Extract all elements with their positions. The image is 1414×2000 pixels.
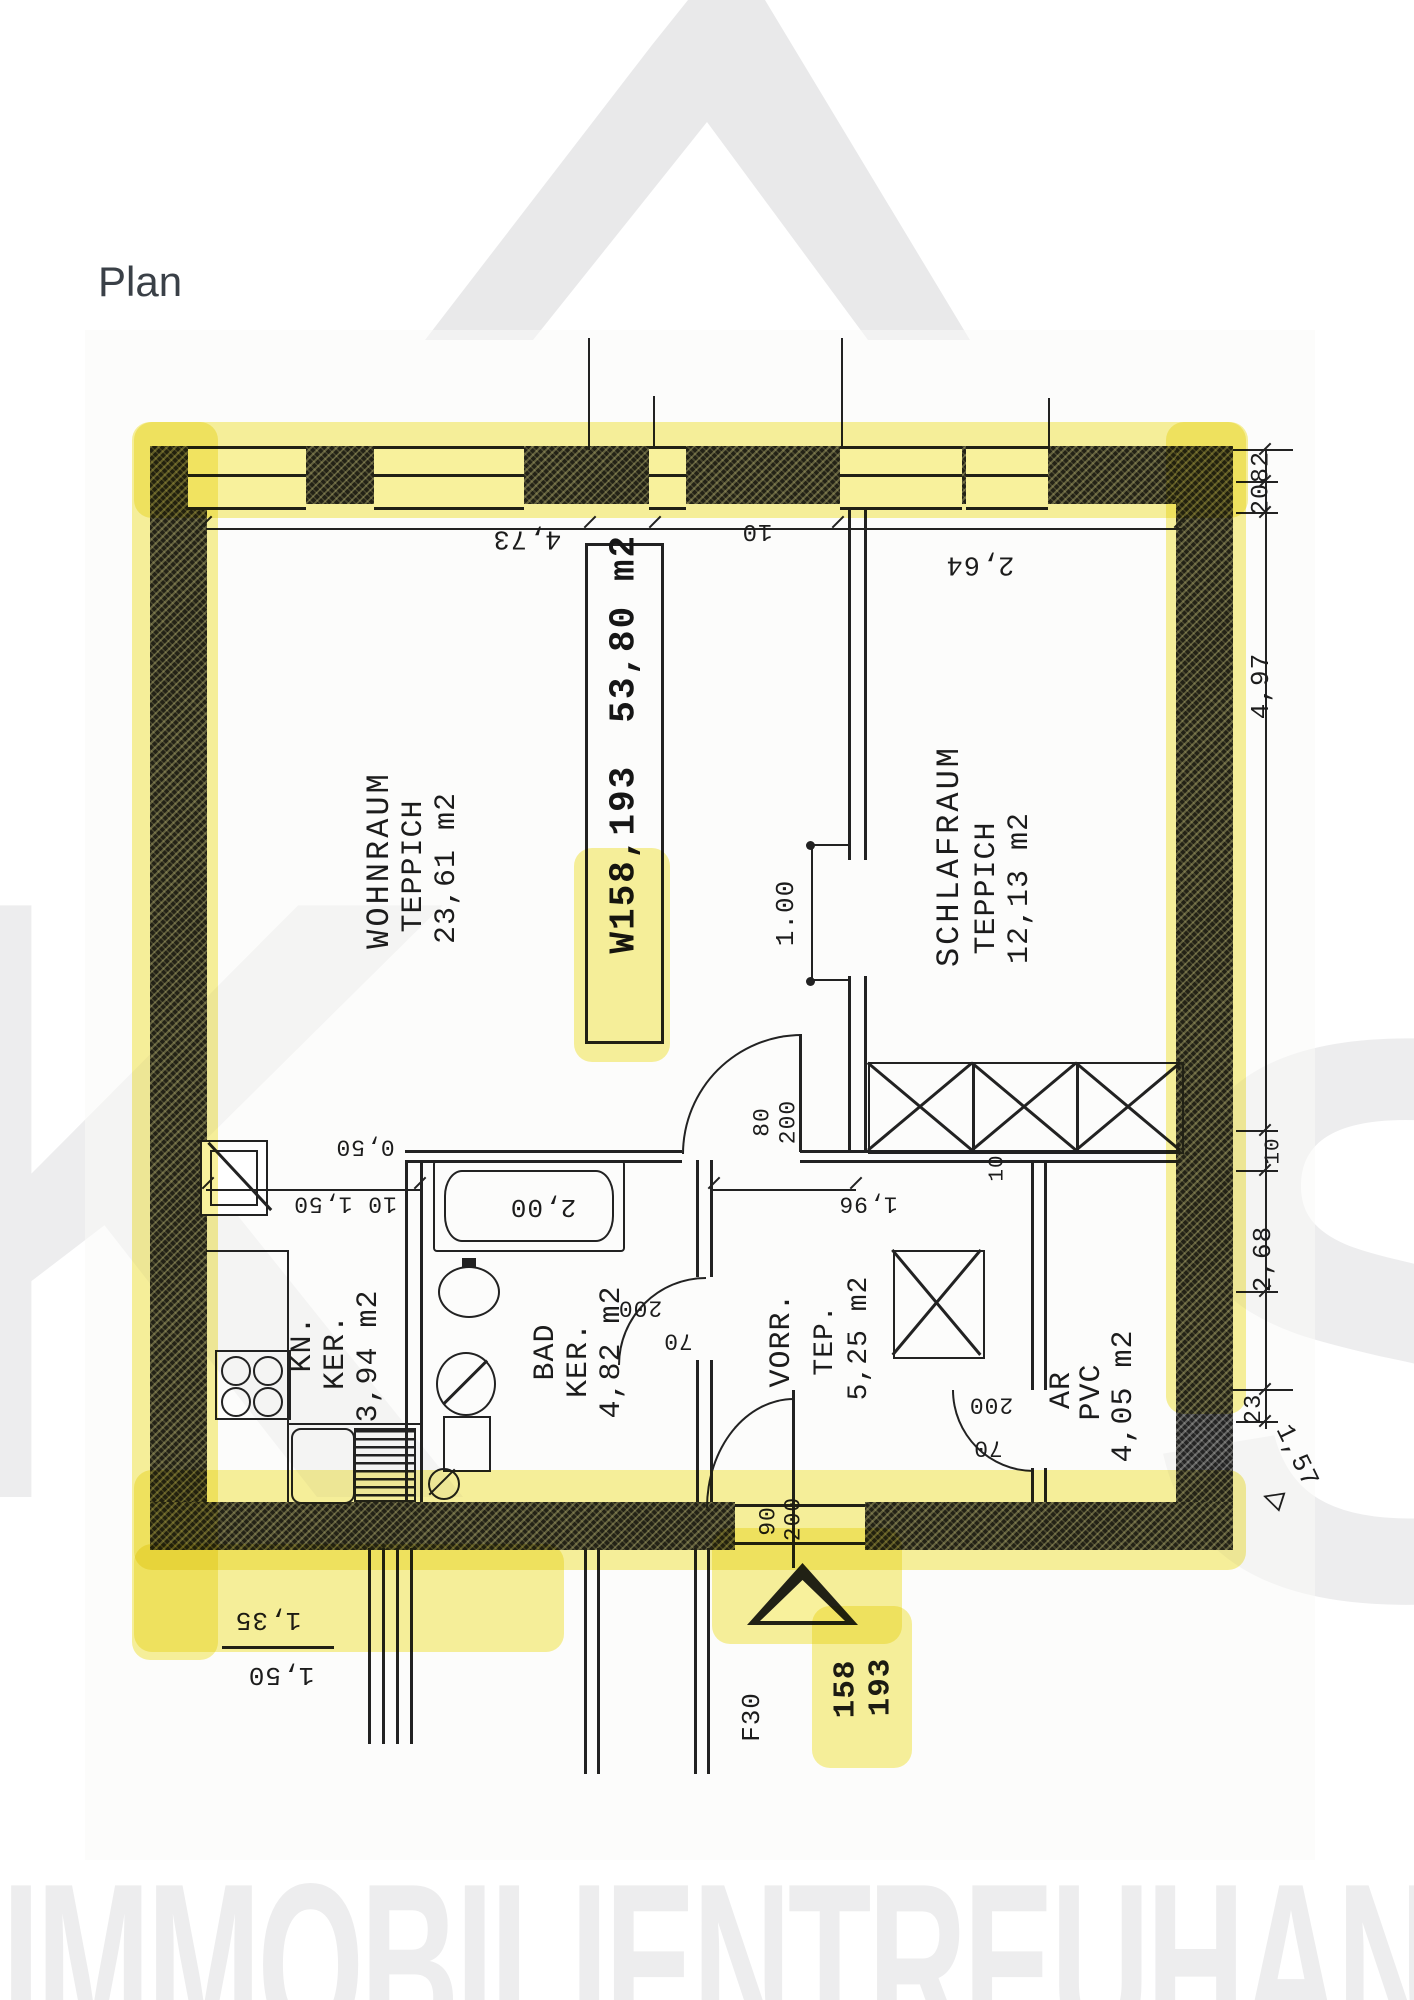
wall-left <box>150 446 207 1550</box>
stove-burner <box>253 1356 283 1386</box>
window <box>840 446 962 510</box>
dim-terrace-upper: 1,35 <box>235 1607 301 1633</box>
unit-number-bottom-1: 158 <box>831 1660 862 1719</box>
walkway-line <box>694 1548 697 1774</box>
dim-kitchen-opening: 10 1,50 <box>293 1192 397 1215</box>
door-dim-bad-w: 70 <box>663 1329 693 1352</box>
wall-ar <box>1031 1160 1034 1390</box>
door-dim-entry-h: 200 <box>783 1497 806 1541</box>
window <box>649 446 686 510</box>
wardrobe-divider <box>1076 1062 1079 1150</box>
watermark-bottom-text: IMMOBILIENTREUHAND <box>2 1850 1414 2000</box>
extension-line <box>588 338 590 450</box>
dim-right-d: 10 <box>1264 1137 1285 1164</box>
room-area-abstellraum: 4,05 m2 <box>1109 1329 1139 1462</box>
room-label-kueche: KN. <box>288 1315 318 1372</box>
floor-drain <box>428 1468 460 1500</box>
room-area-kueche: 3,94 m2 <box>354 1289 384 1422</box>
extension-line <box>1236 1170 1278 1172</box>
room-label-bad: BAD <box>531 1323 561 1380</box>
wall-center-lower <box>864 976 867 1152</box>
unit-number-highlighted: W158, <box>604 836 645 954</box>
door-dim-entry-w: 90 <box>758 1506 781 1536</box>
kitchen-counter-edge <box>287 1423 420 1425</box>
room-floor-kueche: KER. <box>321 1314 351 1390</box>
door-leaf-entry <box>792 1390 795 1568</box>
dim-chain-top <box>206 528 1182 530</box>
extension-line <box>1236 1130 1278 1132</box>
wall-center-lower <box>848 976 851 1152</box>
dim-wardrobe-small: 10 <box>988 1154 1009 1181</box>
stove-burner <box>221 1356 251 1386</box>
dim-line-opening <box>811 845 813 981</box>
extension-line <box>1048 398 1050 450</box>
stove-burner <box>221 1387 251 1417</box>
walkway-line <box>584 1548 587 1774</box>
extension-line <box>841 338 843 450</box>
kitchen-sink <box>291 1428 355 1504</box>
chimney-inner <box>210 1150 258 1206</box>
door-dim-bad-h: 200 <box>618 1296 662 1319</box>
window <box>188 446 306 510</box>
dim-right-f: 23 <box>1243 1394 1267 1425</box>
real-estate-plan-page: K S IMMOBILIENTREUHAND Plan W158,19353,8… <box>0 0 1414 2000</box>
wall-bath-vorraum <box>710 1160 713 1277</box>
wall-bottom-right <box>865 1502 1233 1550</box>
room-label-vorraum: VORR. <box>767 1292 797 1387</box>
room-floor-abstellraum: PVC <box>1077 1363 1107 1420</box>
toilet-tank <box>443 1416 491 1472</box>
wall-center-upper <box>864 504 867 860</box>
dim-schlaf-opening: 1.00 <box>773 880 799 946</box>
door-dim-ar-w: 70 <box>973 1436 1003 1459</box>
roof-logo-watermark-icon <box>420 0 970 340</box>
page-title: Plan <box>98 258 182 306</box>
room-floor-vorraum: TEP. <box>812 1304 840 1375</box>
unit-area-text: W158,19353,80 m2 <box>563 534 686 1048</box>
wardrobe-divider <box>972 1062 975 1150</box>
dim-terrace-lower: 1,50 <box>248 1662 314 1688</box>
wall-ar <box>1044 1468 1047 1502</box>
unit-number-bottom-2: 193 <box>866 1658 897 1717</box>
room-label-schlafraum: SCHLAFRAUM <box>934 745 966 967</box>
unit-number-rest: 193 <box>604 765 645 836</box>
room-floor-schlafraum: TEPPICH <box>972 821 1002 954</box>
door-dim-wohn-h: 200 <box>778 1100 801 1144</box>
stove-burner <box>253 1387 283 1417</box>
room-label-wohnraum: WOHNRAUM <box>364 771 396 949</box>
dim-line-corridor <box>712 1189 856 1191</box>
label-fire-rating: F30 <box>739 1692 765 1742</box>
wall-center-upper <box>848 504 851 860</box>
wall-mid-horizontal <box>405 1150 682 1153</box>
door-dim-ar-h: 200 <box>969 1393 1013 1416</box>
extension-line <box>653 396 655 450</box>
dim-top-mid: 10 <box>742 518 773 542</box>
wall-bath-vorraum <box>696 1160 699 1277</box>
wall-ar <box>1031 1468 1034 1502</box>
room-area-vorraum: 5,25 m2 <box>846 1276 874 1401</box>
dim-tub: 2,00 <box>510 1194 576 1220</box>
unit-total-area: 53,80 m2 <box>604 534 645 723</box>
dim-top-right: 2,64 <box>946 550 1015 577</box>
wall-bottom-left <box>150 1502 735 1550</box>
washbasin-tap <box>462 1258 476 1268</box>
terrace-line <box>410 1548 413 1744</box>
wall-ar <box>1044 1160 1047 1390</box>
dim-right-c: 4,97 <box>1248 653 1274 719</box>
room-area-wohnraum: 23,61 m2 <box>432 792 462 944</box>
kitchen-counter-edge <box>206 1250 287 1252</box>
terrace-line <box>382 1548 385 1744</box>
room-label-abstellraum: AR <box>1047 1371 1077 1409</box>
extension-line <box>813 844 849 846</box>
window <box>374 446 524 510</box>
dim-kitchen-small: 0,50 <box>335 1135 394 1158</box>
extension-line <box>813 979 849 981</box>
room-area-schlafraum: 12,13 m2 <box>1005 812 1035 964</box>
wall-top <box>150 446 1233 504</box>
dim-top-left: 4,73 <box>493 524 562 551</box>
kitchen-drainer <box>354 1428 416 1502</box>
room-floor-wohnraum: TEPPICH <box>399 799 429 932</box>
washbasin <box>438 1266 500 1318</box>
walkway-line <box>707 1548 710 1774</box>
wall-right <box>1176 446 1233 1550</box>
dim-right-a: 82 <box>1249 451 1274 483</box>
terrace-line <box>368 1548 371 1744</box>
window <box>966 446 1048 510</box>
wall-kitchen-bath <box>420 1160 423 1502</box>
walkway-line <box>597 1548 600 1774</box>
room-floor-bad: KER. <box>564 1322 594 1398</box>
dim-fraction-line <box>222 1646 334 1649</box>
entry-threshold-line <box>735 1542 865 1545</box>
wall-bath-vorraum <box>696 1360 699 1502</box>
dim-right-e: 2,68 <box>1250 1226 1276 1292</box>
door-dim-wohn-w: 80 <box>752 1107 775 1137</box>
terrace-line <box>396 1548 399 1744</box>
dim-corridor: 1,96 <box>838 1192 897 1215</box>
dim-right-b: 20 <box>1249 483 1274 515</box>
